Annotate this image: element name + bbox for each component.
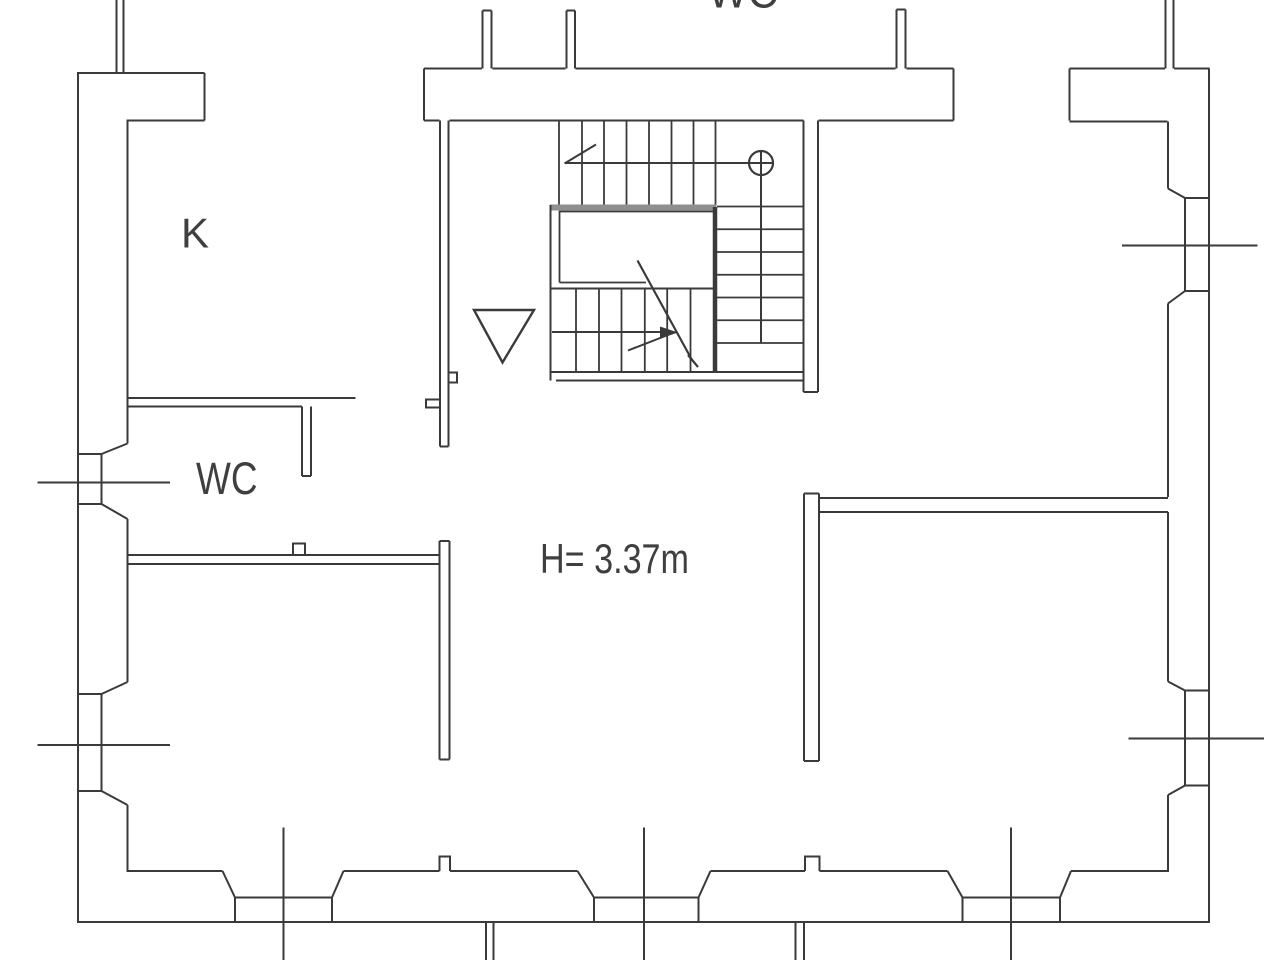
svg-text:K: K <box>181 210 209 257</box>
svg-text:WC: WC <box>708 0 778 18</box>
svg-text:WC: WC <box>196 453 258 504</box>
svg-text:H= 3.37m: H= 3.37m <box>540 535 689 582</box>
